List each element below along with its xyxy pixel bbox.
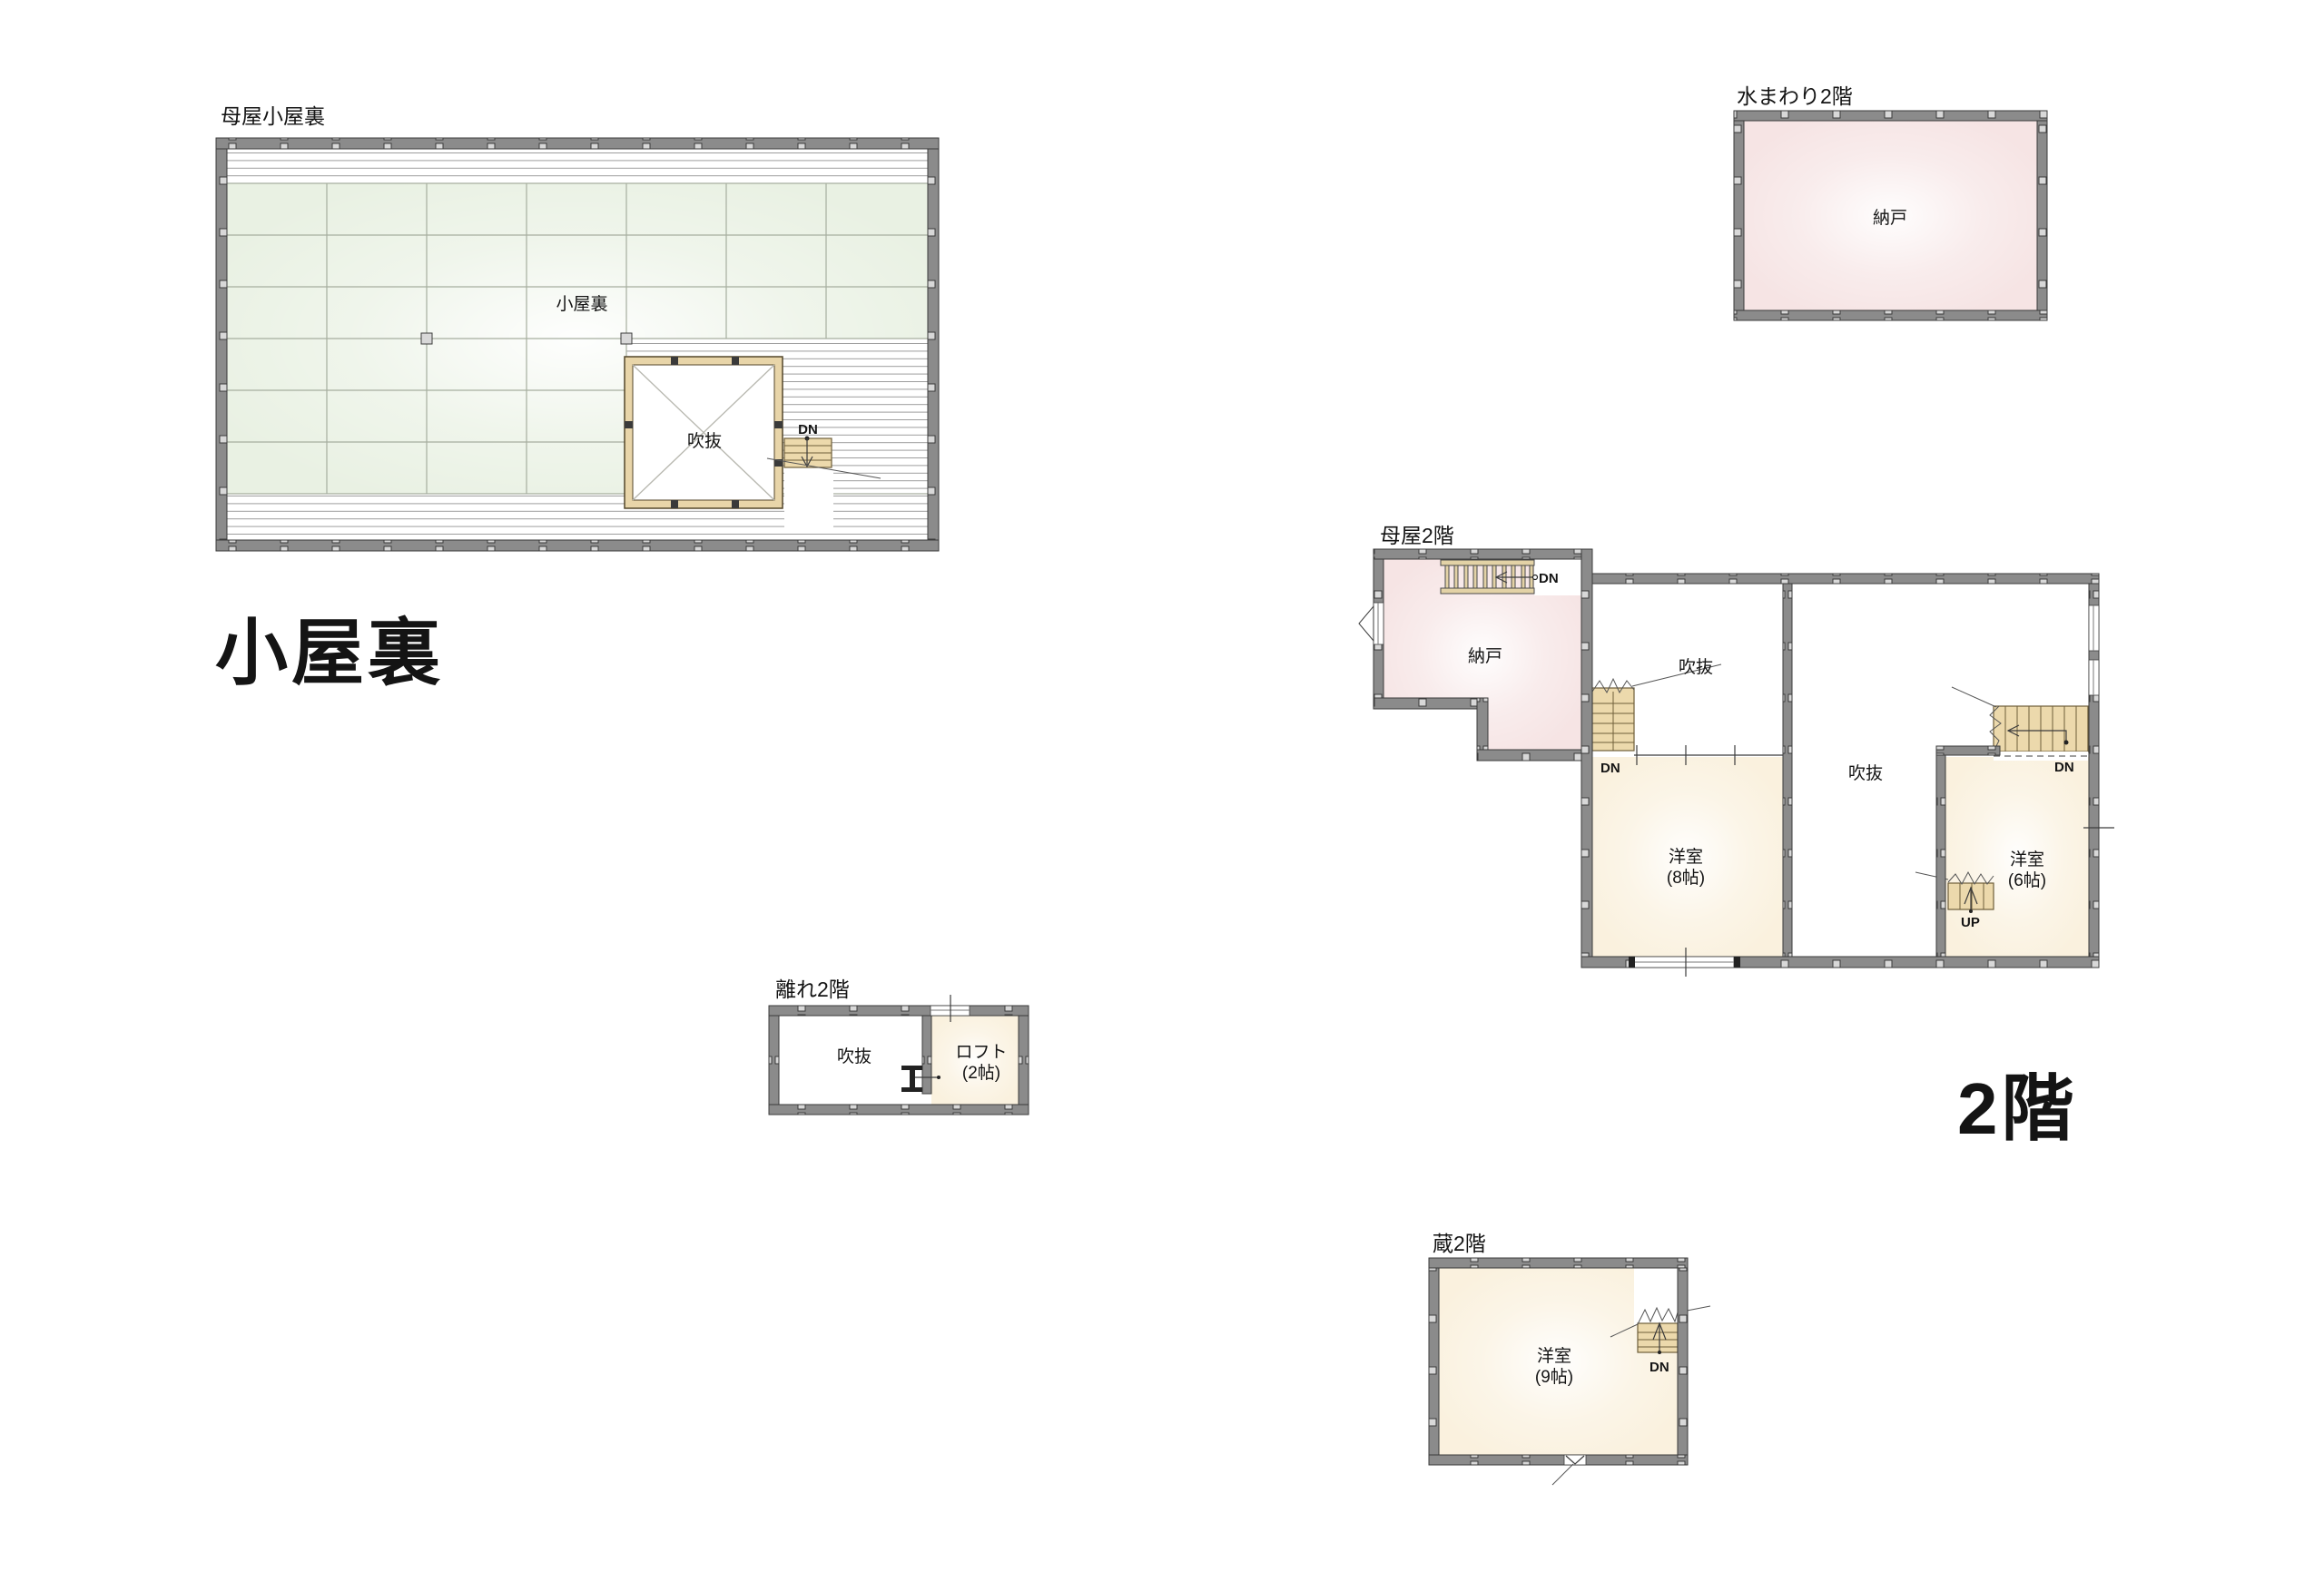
attic-wall-right bbox=[928, 149, 939, 540]
omoya-ladder-dn-label: DN bbox=[1539, 571, 1559, 586]
omoya-void-a-label: 吹抜 bbox=[1679, 657, 1713, 677]
kura-wall-bottom bbox=[1429, 1455, 1688, 1465]
floor2-big-label: 2階 bbox=[1957, 1068, 2078, 1149]
mizumawari-room-label: 納戸 bbox=[1873, 208, 1907, 228]
attic-wall-left bbox=[216, 149, 227, 540]
ladder-rung bbox=[1473, 565, 1477, 588]
omoya-up-dot bbox=[1969, 909, 1973, 913]
hanare-wall-bottom bbox=[769, 1105, 1029, 1115]
omoya-stair-b-dn-label: DN bbox=[2054, 760, 2074, 775]
omoya-stair-a-dn-label: DN bbox=[1600, 761, 1620, 776]
omoya-wall-top-b bbox=[1592, 574, 2099, 584]
omoya-room6-size: (6帖) bbox=[2008, 870, 2046, 890]
kura-plan: 蔵2階 DN 洋室 (9帖) bbox=[1429, 1232, 1710, 1485]
void-border-tick bbox=[732, 500, 739, 508]
hanare-wall-left bbox=[769, 1016, 779, 1105]
kura-room-label: 洋室 bbox=[1537, 1346, 1571, 1366]
ladder-rung bbox=[1445, 565, 1449, 588]
attic-stairwell-white bbox=[784, 467, 833, 531]
hanare-title: 離れ2階 bbox=[775, 978, 850, 1001]
omoya-bottom-window-post bbox=[1734, 957, 1740, 968]
omoya-stairs-b-dot bbox=[2064, 741, 2069, 745]
attic-title: 母屋小屋裏 bbox=[221, 104, 325, 128]
mizumawari-wall-top bbox=[1734, 111, 2047, 121]
kura-room-size: (9帖) bbox=[1535, 1367, 1573, 1387]
omoya-room6-label: 洋室 bbox=[2010, 850, 2044, 870]
kura-stair-dot bbox=[1658, 1351, 1661, 1354]
mizumawari-wall-right bbox=[2037, 121, 2047, 310]
kura-wall-right bbox=[1678, 1268, 1688, 1455]
void-border-tick bbox=[671, 357, 678, 365]
attic-floor bbox=[227, 149, 928, 540]
hanare-void-label: 吹抜 bbox=[837, 1046, 871, 1066]
kura-wall-top bbox=[1429, 1258, 1688, 1268]
omoya-divider-wall-2 bbox=[1936, 746, 1945, 957]
ladder-rung bbox=[1492, 565, 1496, 588]
omoya-up-label: UP bbox=[1961, 915, 1980, 930]
void-border-tick bbox=[625, 421, 633, 428]
omoya-divider-wall-1 bbox=[1783, 584, 1792, 957]
hanare-plan: 離れ2階 吹抜 ロフト (2帖) bbox=[769, 978, 1029, 1115]
mizumawari-wall-left bbox=[1734, 121, 1744, 310]
omoya-title: 母屋2階 bbox=[1380, 524, 1454, 547]
hanare-loft-label: ロフト bbox=[955, 1043, 1007, 1062]
attic-void-label: 吹抜 bbox=[687, 431, 722, 451]
ladder-rung bbox=[1454, 565, 1458, 588]
hanare-ladder-stem bbox=[910, 1066, 915, 1092]
kura-dn-label: DN bbox=[1649, 1360, 1669, 1375]
omoya-notch-wall-h bbox=[1374, 698, 1488, 709]
hanare-wall-right bbox=[1019, 1016, 1029, 1105]
attic-post bbox=[621, 333, 632, 344]
hanare-ladder-dot bbox=[937, 1076, 940, 1079]
omoya-wall-top-a bbox=[1374, 549, 1592, 559]
hanare-wall-top bbox=[769, 1006, 1029, 1016]
attic-wall-bottom bbox=[216, 540, 939, 551]
attic-wall-top bbox=[216, 138, 939, 149]
omoya-opening-triangle-marker bbox=[1359, 606, 1374, 641]
attic-void-square: 吹抜 bbox=[625, 357, 783, 508]
omoya-stairs-b-cutline bbox=[1952, 687, 1996, 707]
hanare-loft-size: (2帖) bbox=[962, 1063, 1000, 1083]
void-border-tick bbox=[732, 357, 739, 365]
attic-dn-label: DN bbox=[798, 422, 818, 437]
attic-big-label: 小屋裏 bbox=[215, 613, 444, 693]
omoya-room8-label: 洋室 bbox=[1669, 847, 1703, 867]
attic-plan: 母屋小屋裏 吹抜 bbox=[215, 104, 939, 693]
ladder-rung bbox=[1464, 565, 1468, 588]
omoya-plan: 母屋2階 DN bbox=[1359, 524, 2114, 977]
ladder-rail-top bbox=[1441, 560, 1534, 565]
omoya-room6-top-wall bbox=[1936, 746, 2000, 755]
mizumawari-wall-bottom bbox=[1734, 310, 2047, 320]
kura-stairwell-white bbox=[1634, 1268, 1678, 1325]
ladder-rung bbox=[1483, 565, 1487, 588]
omoya-nando-label: 納戸 bbox=[1468, 646, 1502, 666]
omoya-nando-bottom-wall bbox=[1477, 750, 1592, 761]
kura-opening-cutline bbox=[1552, 1464, 1573, 1485]
floorplan-sheet: 母屋小屋裏 吹抜 bbox=[0, 0, 2324, 1582]
void-border-tick bbox=[774, 421, 783, 428]
kura-wall-left bbox=[1429, 1268, 1439, 1455]
void-border-tick bbox=[671, 500, 678, 508]
floorplan-canvas: 母屋小屋裏 吹抜 bbox=[0, 0, 2324, 1582]
omoya-room8-size: (8帖) bbox=[1667, 868, 1705, 888]
omoya-bottom-window-post bbox=[1629, 957, 1635, 968]
mizumawari-plan: 水まわり2階 納戸 bbox=[1734, 84, 2047, 320]
ladder-arrow-dot bbox=[1533, 575, 1538, 580]
kura-title: 蔵2階 bbox=[1433, 1232, 1486, 1255]
attic-post bbox=[421, 333, 432, 344]
mizumawari-title: 水まわり2階 bbox=[1737, 84, 1853, 108]
omoya-void-b-label: 吹抜 bbox=[1848, 763, 1883, 783]
omoya-center-wall bbox=[1581, 549, 1592, 968]
ladder-rail-bottom bbox=[1441, 588, 1534, 594]
attic-eave-hatch-top bbox=[227, 149, 928, 183]
attic-room-label: 小屋裏 bbox=[556, 294, 607, 314]
hanare-divider-wall bbox=[922, 1016, 931, 1094]
